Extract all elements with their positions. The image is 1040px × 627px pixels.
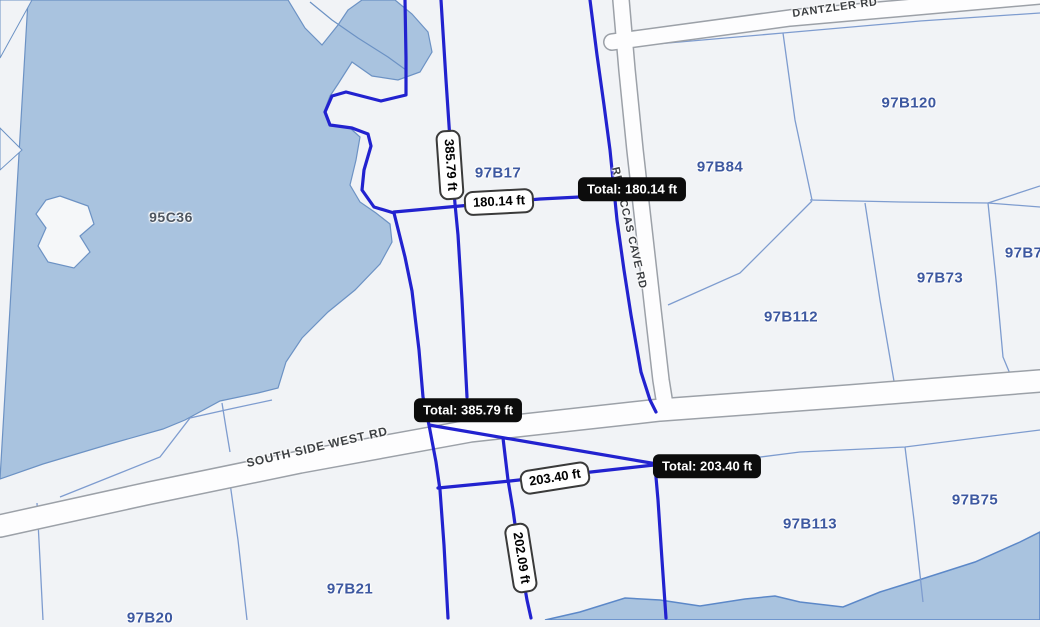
island — [36, 196, 94, 268]
map-graphics — [0, 0, 1040, 620]
map-canvas[interactable]: 95C36 97B17 97B84 97B120 97B73 97B74 97B… — [0, 0, 1040, 620]
